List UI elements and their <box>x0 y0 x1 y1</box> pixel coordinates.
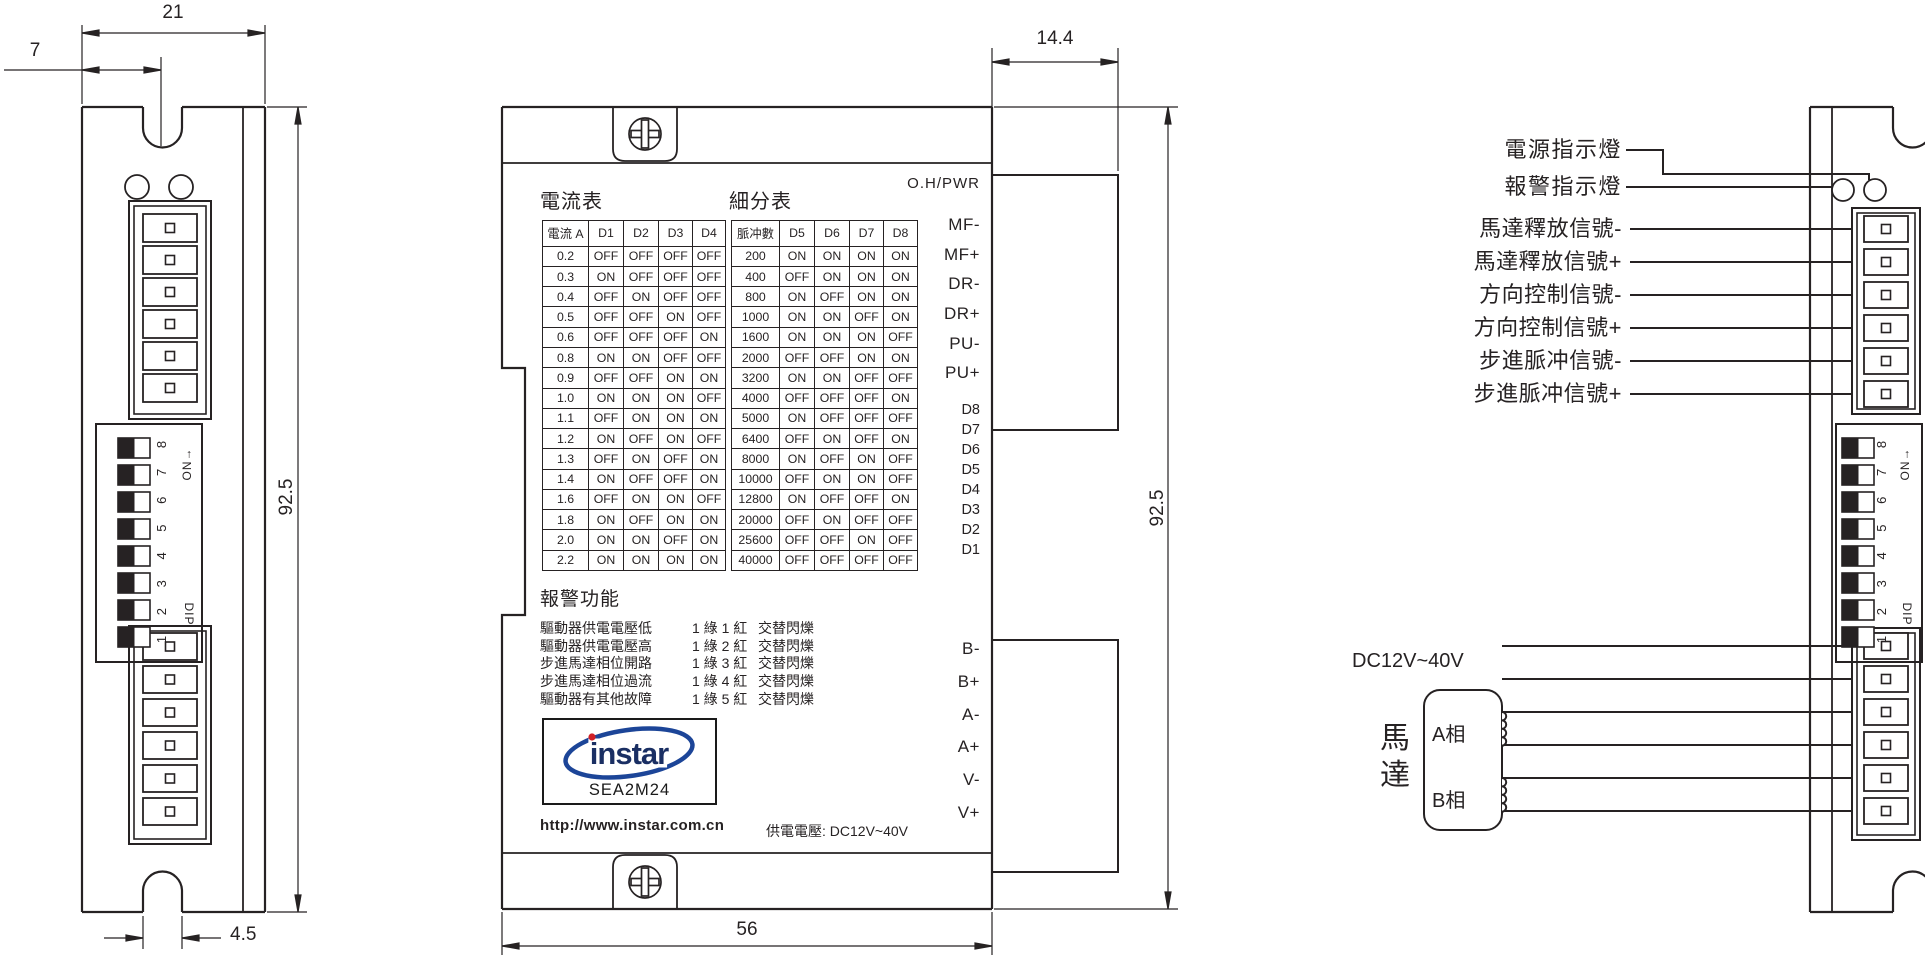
pin-label: V- <box>870 764 980 797</box>
cell: 0.4 <box>543 287 589 307</box>
cell: OFF <box>815 287 850 307</box>
cell: ON <box>589 530 624 550</box>
cell: ON <box>815 266 850 286</box>
cell: OFF <box>589 307 624 327</box>
cell: OFF <box>624 307 659 327</box>
cell: 10000 <box>732 469 780 489</box>
header-cell: D4 <box>693 221 726 247</box>
driver-dimension-diagram: 21 7 92.5 4.5 14.4 92.5 56 電流表 細分表 O.H/P… <box>0 0 1925 965</box>
signal-wire-label: 方向控制信號+ <box>1400 311 1622 344</box>
pin-label: B+ <box>870 666 980 699</box>
table-row: 1.8ONOFFONON <box>543 510 726 530</box>
cell: 2.2 <box>543 550 589 570</box>
table-row: 1.6OFFONONOFF <box>543 489 726 509</box>
fault: 驅動器供電電壓高 <box>540 638 692 656</box>
pin-label: DR+ <box>870 299 980 329</box>
alarm-row: 驅動器有其他故障1 綠 5 紅交替閃爍 <box>540 691 870 709</box>
cell: OFF <box>815 530 850 550</box>
fault: 步進馬達相位開路 <box>540 655 692 673</box>
led-wire-labels: 電源指示燈報警指示燈 <box>1410 131 1622 205</box>
cell: ON <box>780 449 815 469</box>
cell: 0.8 <box>543 348 589 368</box>
cell: ON <box>659 429 693 449</box>
cell: ON <box>589 388 624 408</box>
pin-label: A- <box>870 699 980 732</box>
cell: ON <box>589 510 624 530</box>
cell: ON <box>850 469 884 489</box>
cell: OFF <box>589 408 624 428</box>
cell: 1.2 <box>543 429 589 449</box>
cell: ON <box>815 327 850 347</box>
right-bottom-connector <box>1852 628 1920 840</box>
led-circle <box>169 175 193 199</box>
dip-pin-labels: D8D7D6D5D4D3D2D1 <box>880 400 980 560</box>
cell: 4000 <box>732 388 780 408</box>
phase-a-coil <box>1502 712 1506 746</box>
cell: OFF <box>693 287 726 307</box>
phase-b-label: B相 <box>1432 784 1465 813</box>
led-circle <box>125 175 149 199</box>
cell: OFF <box>659 246 693 266</box>
cell: 800 <box>732 287 780 307</box>
cell: ON <box>815 469 850 489</box>
table-row: 0.9OFFOFFONON <box>543 368 726 388</box>
cell: OFF <box>780 266 815 286</box>
cell: ON <box>624 530 659 550</box>
cell: ON <box>780 246 815 266</box>
header-cell: D1 <box>589 221 624 247</box>
dip-pin-label: D7 <box>880 420 980 440</box>
blink-code: 1 綠 2 紅 <box>692 638 758 656</box>
cell: OFF <box>659 530 693 550</box>
cell: 200 <box>732 246 780 266</box>
right-top-connector <box>1852 208 1920 414</box>
cell: OFF <box>780 550 815 570</box>
table-row: 1.3OFFONOFFON <box>543 449 726 469</box>
cell: OFF <box>624 266 659 286</box>
cell: OFF <box>693 307 726 327</box>
dip-dip-label: DIP <box>1898 584 1914 644</box>
alarm-row: 驅動器供電電壓高1 綠 2 紅交替閃爍 <box>540 638 870 656</box>
cell: ON <box>815 510 850 530</box>
dip-pin-label: D6 <box>880 440 980 460</box>
cell: ON <box>815 429 850 449</box>
current-table: 電流 AD1D2D3D40.2OFFOFFOFFOFF0.3ONOFFOFFOF… <box>542 220 726 571</box>
table-row: 1.4ONOFFOFFON <box>543 469 726 489</box>
fault: 驅動器有其他故障 <box>540 691 692 709</box>
pins-bottom-labels: B-B+A-A+V-V+ <box>870 633 980 830</box>
cell: 0.9 <box>543 368 589 388</box>
cell: 12800 <box>732 489 780 509</box>
cell: OFF <box>780 388 815 408</box>
cell: OFF <box>815 348 850 368</box>
alarm-row: 步進馬達相位過流1 綠 4 紅交替閃爍 <box>540 673 870 691</box>
pin-label: B- <box>870 633 980 666</box>
led-wire-label: 報警指示燈 <box>1410 168 1622 205</box>
blink-mode: 交替閃爍 <box>758 638 870 656</box>
cell: OFF <box>850 388 884 408</box>
phase-a-wires <box>1502 712 1852 745</box>
cell: OFF <box>780 348 815 368</box>
dip-dip-label: DIP <box>180 584 196 644</box>
cell: 20000 <box>732 510 780 530</box>
phase-b-coil <box>1502 778 1506 812</box>
cell: ON <box>780 489 815 509</box>
blink-code: 1 綠 3 紅 <box>692 655 758 673</box>
motor-label: 馬達 <box>1378 720 1412 794</box>
dip-on-label: ON→ <box>1898 434 1914 494</box>
cell: 25600 <box>732 530 780 550</box>
phase-a-label: A相 <box>1432 718 1465 747</box>
cell: ON <box>780 368 815 388</box>
cell: OFF <box>624 469 659 489</box>
pin-label: MF- <box>870 210 980 240</box>
cell: ON <box>624 550 659 570</box>
cell: ON <box>659 550 693 570</box>
blink-mode: 交替閃爍 <box>758 655 870 673</box>
cell: ON <box>589 266 624 286</box>
cell: ON <box>693 408 726 428</box>
cell: OFF <box>815 489 850 509</box>
cell: OFF <box>589 449 624 469</box>
table-row: 0.5OFFOFFONOFF <box>543 307 726 327</box>
cell: ON <box>693 449 726 469</box>
cell: OFF <box>693 388 726 408</box>
cell: OFF <box>850 510 884 530</box>
bottom-right-terminal-block <box>992 640 1118 872</box>
phase-b-wires <box>1502 778 1852 811</box>
cell: 0.3 <box>543 266 589 286</box>
dim-mid-depth: 14.4 <box>1015 28 1095 50</box>
cell: ON <box>693 469 726 489</box>
cell: ON <box>659 489 693 509</box>
cell: 3200 <box>732 368 780 388</box>
cell: ON <box>815 307 850 327</box>
alarm-title: 報警功能 <box>540 584 620 611</box>
cell: 1.8 <box>543 510 589 530</box>
cell: ON <box>624 348 659 368</box>
pin-label: A+ <box>870 731 980 764</box>
blink-code: 1 綠 1 紅 <box>692 620 758 638</box>
right-bottom-notch <box>1893 872 1925 913</box>
cell: OFF <box>815 388 850 408</box>
header-cell: 電流 A <box>543 221 589 247</box>
dim-mid-height: 92.5 <box>1147 478 1169 538</box>
cell: OFF <box>624 429 659 449</box>
blink-code: 1 綠 5 紅 <box>692 691 758 709</box>
cell: ON <box>589 348 624 368</box>
cell: OFF <box>659 327 693 347</box>
logo-red-dot <box>588 733 595 740</box>
cell: ON <box>815 368 850 388</box>
cell: ON <box>693 550 726 570</box>
dc-power-wires <box>1502 646 1852 679</box>
cell: 1.3 <box>543 449 589 469</box>
header-cell: D6 <box>815 221 850 247</box>
cell: ON <box>659 307 693 327</box>
header-cell: D3 <box>659 221 693 247</box>
dim-left-height: 92.5 <box>276 467 298 527</box>
left-top-connector <box>129 201 211 419</box>
alarm-led-circle <box>1864 179 1886 201</box>
current-table-title: 電流表 <box>540 185 603 214</box>
header-cell: D5 <box>780 221 815 247</box>
dim-mid-width: 56 <box>717 919 777 941</box>
alarm-row: 步進馬達相位開路1 綠 3 紅交替閃爍 <box>540 655 870 673</box>
cell: OFF <box>780 469 815 489</box>
cell: ON <box>850 530 884 550</box>
led-wire-label: 電源指示燈 <box>1410 131 1622 168</box>
right-top-notch <box>1893 107 1925 148</box>
cell: ON <box>780 408 815 428</box>
dip-pin-label: D8 <box>880 400 980 420</box>
cell: OFF <box>624 368 659 388</box>
cell: ON <box>780 307 815 327</box>
cell: OFF <box>589 246 624 266</box>
signal-wires <box>1630 229 1852 394</box>
brand-logo-box: instar SEA2M24 <box>542 718 717 805</box>
cell: OFF <box>589 287 624 307</box>
cell: OFF <box>693 348 726 368</box>
cell: OFF <box>693 429 726 449</box>
table-row: 0.8ONONOFFOFF <box>543 348 726 368</box>
cell: OFF <box>659 449 693 469</box>
blink-mode: 交替閃爍 <box>758 691 870 709</box>
cell: OFF <box>624 327 659 347</box>
cell: OFF <box>589 327 624 347</box>
dip-pin-label: D5 <box>880 460 980 480</box>
power-note: 供電電壓: DC12V~40V <box>766 821 908 841</box>
cell: OFF <box>850 489 884 509</box>
cell: 1.6 <box>543 489 589 509</box>
top-screw-icon <box>629 118 661 150</box>
cell: ON <box>850 449 884 469</box>
cell: 40000 <box>732 550 780 570</box>
left-bottom-notch <box>143 872 182 912</box>
table-row: 0.6OFFOFFOFFON <box>543 327 726 347</box>
cell: ON <box>780 327 815 347</box>
cell: ON <box>659 368 693 388</box>
table-row: 1.1OFFONONON <box>543 408 726 428</box>
signal-wire-label: 步進脈冲信號- <box>1400 344 1622 377</box>
pins-top-labels: MF-MF+DR-DR+PU-PU+ <box>870 210 980 388</box>
left-bottom-connector <box>129 626 211 844</box>
dip-numbers: 1 2 3 4 5 6 7 8 <box>1874 437 1894 647</box>
cell: OFF <box>589 368 624 388</box>
pin-label: MF+ <box>870 240 980 270</box>
power-led-circle <box>1832 179 1854 201</box>
cell: OFF <box>693 489 726 509</box>
cell: ON <box>659 408 693 428</box>
instar-logo: instar <box>544 720 714 780</box>
dip-pin-label: D1 <box>880 540 980 560</box>
dip-numbers: 1 2 3 4 5 6 7 8 <box>154 437 174 647</box>
signal-wire-labels: 馬達釋放信號-馬達釋放信號+方向控制信號-方向控制信號+步進脈冲信號-步進脈冲信… <box>1400 212 1622 410</box>
cell: OFF <box>659 348 693 368</box>
cell: OFF <box>659 266 693 286</box>
cell: 1.0 <box>543 388 589 408</box>
bottom-screw-icon <box>629 866 661 898</box>
dip-pin-label: D2 <box>880 520 980 540</box>
cell: OFF <box>589 489 624 509</box>
table-header-row: 電流 AD1D2D3D4 <box>543 221 726 247</box>
subdivision-table-title: 細分表 <box>729 185 792 214</box>
cell: 1000 <box>732 307 780 327</box>
cell: OFF <box>850 429 884 449</box>
website-url: http://www.instar.com.cn <box>540 817 724 834</box>
dip-pin-label: D4 <box>880 480 980 500</box>
cell: OFF <box>850 408 884 428</box>
cell: ON <box>624 489 659 509</box>
fault: 步進馬達相位過流 <box>540 673 692 691</box>
pin-label: DR- <box>870 269 980 299</box>
cell: OFF <box>659 287 693 307</box>
cell: OFF <box>780 530 815 550</box>
cell: 400 <box>732 266 780 286</box>
cell: 6400 <box>732 429 780 449</box>
header-cell: D2 <box>624 221 659 247</box>
alarm-row: 驅動器供電電壓低1 綠 1 紅交替閃爍 <box>540 620 870 638</box>
cell: ON <box>624 449 659 469</box>
cell: OFF <box>815 408 850 428</box>
table-row: 1.0ONONONOFF <box>543 388 726 408</box>
blink-mode: 交替閃爍 <box>758 620 870 638</box>
cell: ON <box>693 510 726 530</box>
cell: 2.0 <box>543 530 589 550</box>
signal-wire-label: 步進脈冲信號+ <box>1400 377 1622 410</box>
cell: OFF <box>850 550 884 570</box>
cell: 1.1 <box>543 408 589 428</box>
blink-mode: 交替閃爍 <box>758 673 870 691</box>
table-row: 0.4OFFONOFFOFF <box>543 287 726 307</box>
left-top-notch <box>143 107 182 147</box>
table-row: 0.2OFFOFFOFFOFF <box>543 246 726 266</box>
cell: OFF <box>624 510 659 530</box>
fault: 驅動器供電電壓低 <box>540 620 692 638</box>
dim-left-notch-offset: 7 <box>20 40 50 62</box>
table-row: 0.3ONOFFOFFOFF <box>543 266 726 286</box>
dip-pin-label: D3 <box>880 500 980 520</box>
blink-code: 1 綠 4 紅 <box>692 673 758 691</box>
cell: ON <box>659 510 693 530</box>
dim-left-width: 21 <box>153 2 193 24</box>
dim-left-slot: 4.5 <box>230 924 256 946</box>
table-row: 2.2ONONONON <box>543 550 726 570</box>
brand-name: instar <box>590 736 669 771</box>
cell: ON <box>780 287 815 307</box>
pin-label: PU- <box>870 329 980 359</box>
cell: OFF <box>624 246 659 266</box>
status-label: O.H/PWR <box>880 175 980 192</box>
cell: ON <box>693 530 726 550</box>
cell: ON <box>624 287 659 307</box>
cell: 2000 <box>732 348 780 368</box>
signal-wire-label: 方向控制信號- <box>1400 278 1622 311</box>
table-row: 2.0ONONOFFON <box>543 530 726 550</box>
cell: ON <box>624 408 659 428</box>
alarm-table: 驅動器供電電壓低1 綠 1 紅交替閃爍驅動器供電電壓高1 綠 2 紅交替閃爍步進… <box>540 620 870 708</box>
cell: ON <box>589 469 624 489</box>
dip-on-label: ON→ <box>180 434 196 494</box>
header-cell: 脈冲數 <box>732 221 780 247</box>
cell: ON <box>624 388 659 408</box>
cell: ON <box>589 429 624 449</box>
dc-power-label: DC12V~40V <box>1352 650 1464 673</box>
cell: OFF <box>780 510 815 530</box>
top-right-terminal-block <box>992 175 1118 430</box>
cell: 1600 <box>732 327 780 347</box>
cell: OFF <box>815 550 850 570</box>
signal-wire-label: 馬達釋放信號+ <box>1400 245 1622 278</box>
cell: 0.5 <box>543 307 589 327</box>
cell: 1.4 <box>543 469 589 489</box>
table-row: 1.2ONOFFONOFF <box>543 429 726 449</box>
model-label: SEA2M24 <box>544 781 715 800</box>
cell: OFF <box>815 449 850 469</box>
cell: 0.6 <box>543 327 589 347</box>
cell: 5000 <box>732 408 780 428</box>
cell: ON <box>589 550 624 570</box>
cell: ON <box>693 368 726 388</box>
cell: 0.2 <box>543 246 589 266</box>
cell: ON <box>693 327 726 347</box>
cell: ON <box>659 388 693 408</box>
cell: OFF <box>659 469 693 489</box>
cell: OFF <box>693 246 726 266</box>
signal-wire-label: 馬達釋放信號- <box>1400 212 1622 245</box>
cell: OFF <box>693 266 726 286</box>
pin-label: PU+ <box>870 358 980 388</box>
cell: 8000 <box>732 449 780 469</box>
cell: OFF <box>780 429 815 449</box>
cell: ON <box>815 246 850 266</box>
